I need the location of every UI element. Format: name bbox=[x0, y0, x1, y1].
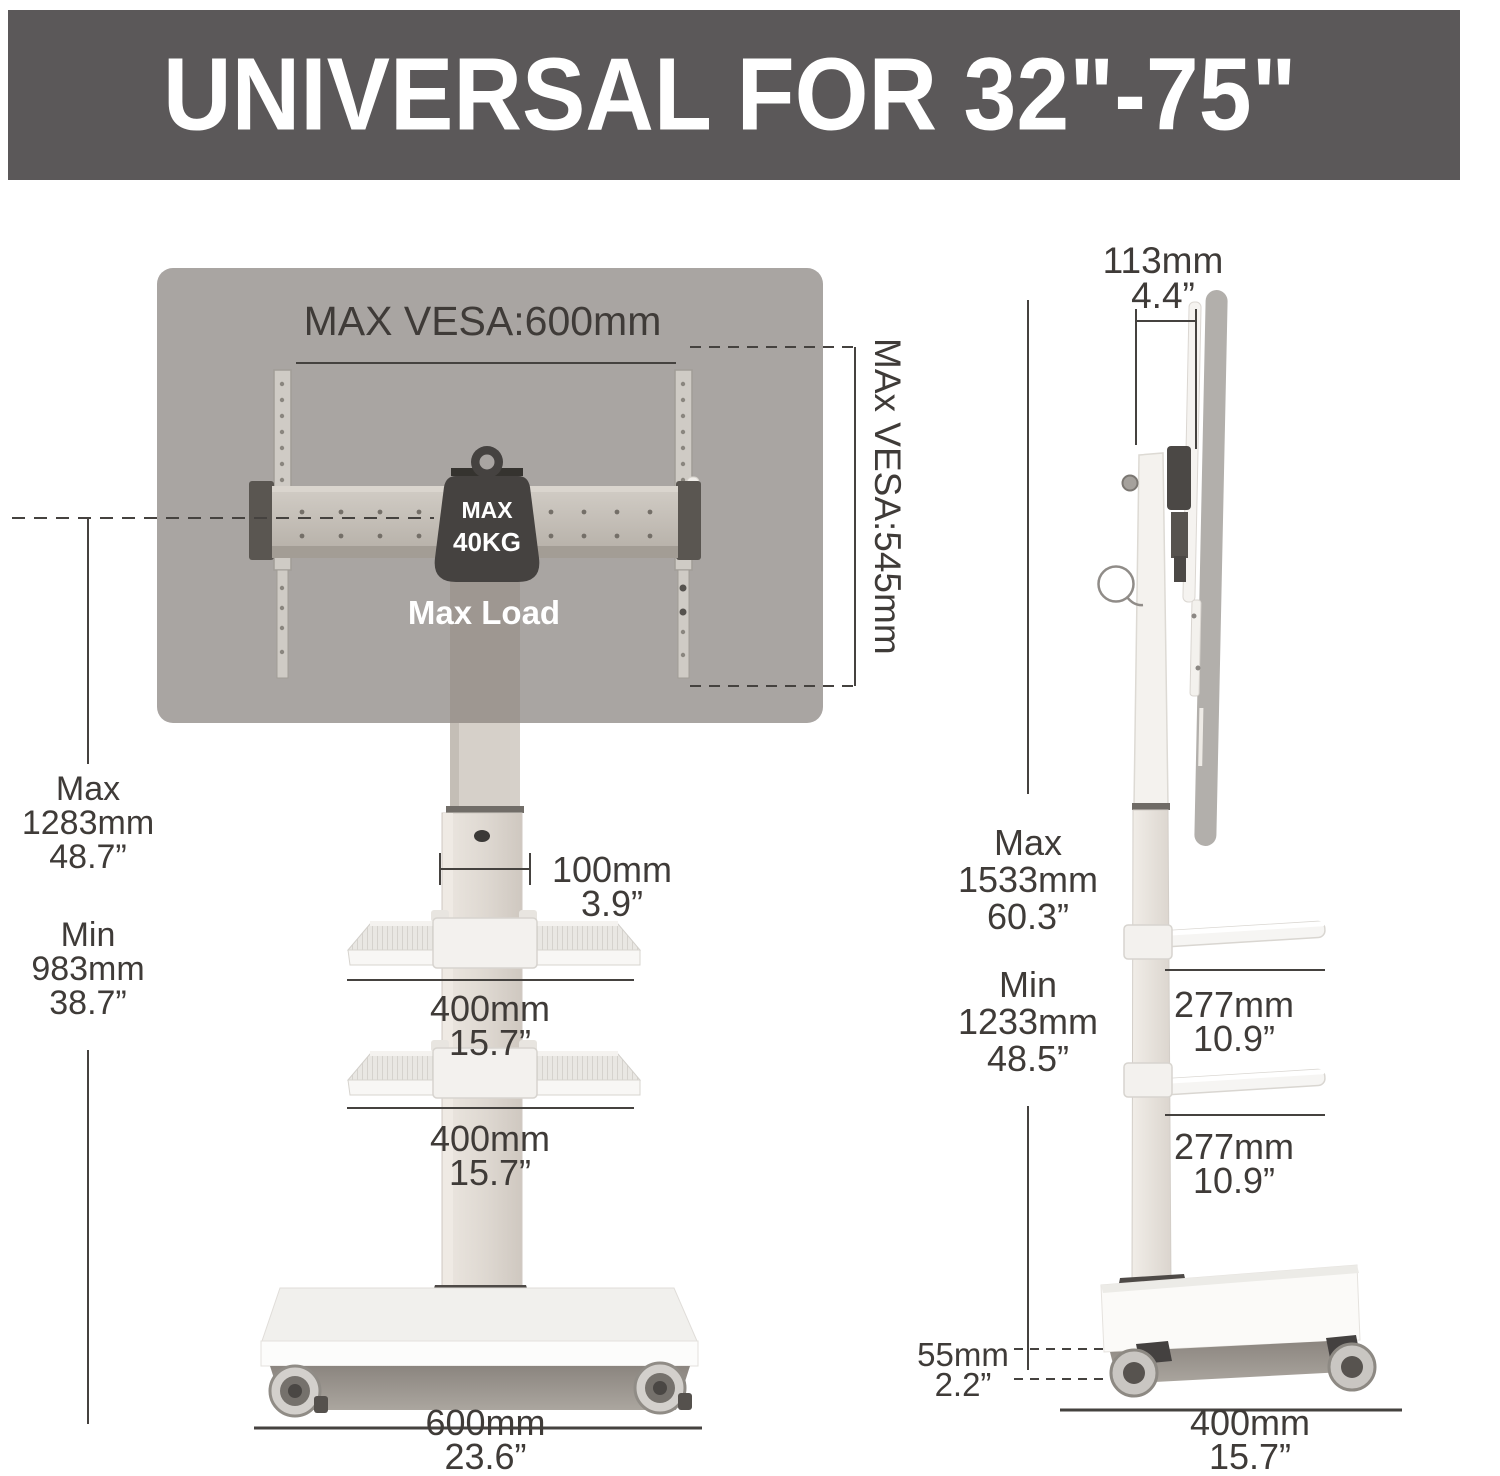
side-height-max-label: Max 1533mm 60.3” bbox=[944, 824, 1112, 935]
max-vesa-width-label: MAX VESA:600mm bbox=[300, 304, 665, 338]
cable-ring bbox=[1099, 567, 1134, 602]
front-base-width-label: 600mm 23.6” bbox=[388, 1406, 583, 1474]
adjust-knob bbox=[1123, 476, 1138, 491]
front-shelf-lower-label: 400mm 15.7” bbox=[400, 1122, 580, 1190]
side-shelf-lower-label: 277mm 10.9” bbox=[1145, 1130, 1323, 1198]
side-shelf-upper bbox=[1124, 921, 1325, 959]
front-height-min-label: Min 983mm 38.7” bbox=[4, 918, 172, 1020]
diagram-canvas bbox=[0, 0, 1500, 1476]
side-height-min-label: Min 1233mm 48.5” bbox=[944, 966, 1112, 1077]
cable-hole bbox=[474, 830, 490, 842]
side-base-depth-label: 400mm 15.7” bbox=[1155, 1406, 1345, 1474]
max-vesa-height-label: MAx VESA:545mm bbox=[866, 338, 908, 655]
pole-width-label: 100mm 3.9” bbox=[533, 853, 691, 921]
front-height-max-label: Max 1283mm 48.7” bbox=[4, 772, 172, 874]
side-caster-right bbox=[1326, 1335, 1375, 1390]
front-shelf-upper-label: 400mm 15.7” bbox=[400, 992, 580, 1060]
side-shelf-lower bbox=[1124, 1063, 1325, 1097]
side-base bbox=[1101, 1265, 1375, 1396]
side-view bbox=[1099, 290, 1376, 1396]
max-load-label: Max Load bbox=[384, 594, 584, 632]
weight-badge-40kg: 40KG bbox=[437, 527, 537, 558]
side-depth-label: 113mm 4.4” bbox=[1083, 243, 1243, 313]
side-caster-label: 55mm 2.2” bbox=[898, 1340, 1028, 1400]
front-view bbox=[157, 268, 823, 1416]
front-base bbox=[261, 1285, 698, 1416]
weight-badge-max: MAX bbox=[437, 497, 537, 524]
product-dimension-diagram: UNIVERSAL FOR 32"-75" bbox=[0, 0, 1500, 1476]
side-shelf-upper-label: 277mm 10.9” bbox=[1145, 988, 1323, 1056]
